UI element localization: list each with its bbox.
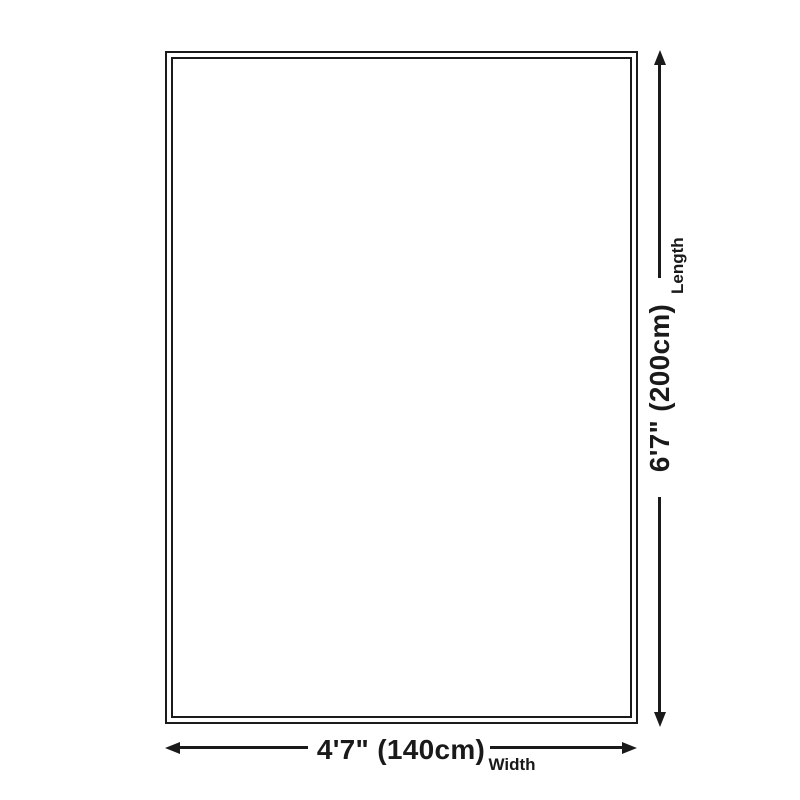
length-axis-label: Length [667, 238, 689, 294]
width-value: 4'7" (140cm) [308, 735, 494, 765]
width-arrow-line-right [490, 746, 623, 749]
width-axis-label: Width [488, 754, 536, 776]
width-arrow-line-left [179, 746, 308, 749]
arrow-right-icon [622, 742, 637, 754]
rug-outline-outer [165, 51, 638, 724]
length-arrow-line-top [658, 63, 661, 278]
arrow-left-icon [165, 742, 180, 754]
rug-outline-inner [171, 57, 632, 718]
rug-size-diagram: Length 6'7" (200cm) 4'7" (140cm) Width [0, 0, 800, 800]
arrow-down-icon [654, 712, 666, 727]
length-value: 6'7" (200cm) [645, 288, 675, 488]
length-arrow-line-bottom [658, 497, 661, 713]
